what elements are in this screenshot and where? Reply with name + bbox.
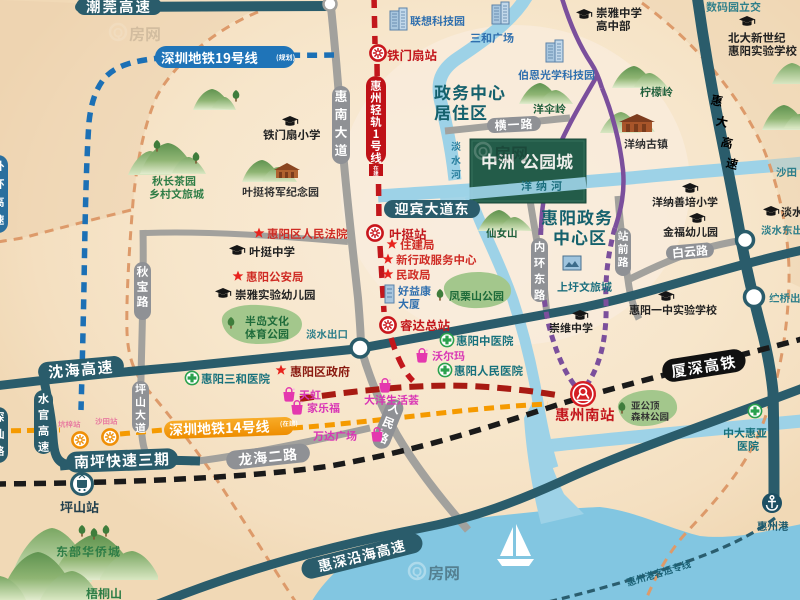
svg-text:Q: Q — [113, 25, 123, 40]
svg-text:Q: Q — [478, 144, 488, 159]
svg-text:Q: Q — [412, 564, 422, 579]
